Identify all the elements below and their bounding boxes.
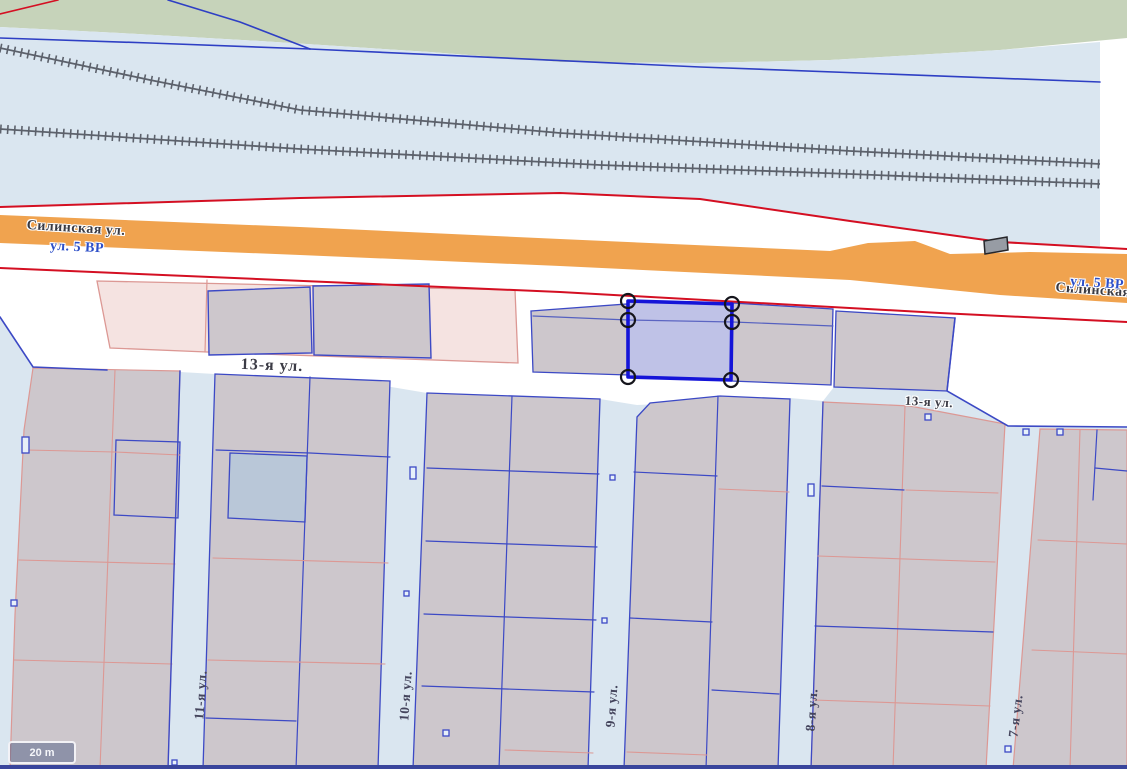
map-canvas[interactable] xyxy=(0,0,1127,769)
node-marker-8[interactable] xyxy=(1005,746,1011,752)
node-marker-6[interactable] xyxy=(410,467,416,479)
parcel-top-row-4[interactable] xyxy=(731,303,833,385)
block-10-9[interactable] xyxy=(413,393,600,769)
block-11-10[interactable] xyxy=(203,374,390,769)
map-root: Силинская ул.ул. 5 ВРСилинскаяул. 5 ВР13… xyxy=(0,0,1127,769)
parcel-bluegray[interactable] xyxy=(228,453,307,522)
node-marker-10[interactable] xyxy=(1023,429,1029,435)
bottom-boundary-band xyxy=(0,765,1127,769)
parcel-top-row-1[interactable] xyxy=(208,287,312,355)
node-marker-7[interactable] xyxy=(443,730,449,736)
node-marker-0[interactable] xyxy=(22,437,29,453)
node-marker-4[interactable] xyxy=(602,618,607,623)
node-marker-11[interactable] xyxy=(1057,429,1063,435)
node-marker-12[interactable] xyxy=(808,484,814,496)
parcel-block-a-blue[interactable] xyxy=(114,440,180,518)
node-marker-9[interactable] xyxy=(172,760,177,765)
scale-bar: 20 m xyxy=(8,741,76,764)
parcel-top-row-2[interactable] xyxy=(313,284,431,358)
block-8-7[interactable] xyxy=(811,402,1005,769)
parcel-top-row-3[interactable] xyxy=(531,304,628,375)
selected-parcel[interactable] xyxy=(628,301,732,380)
node-marker-1[interactable] xyxy=(11,600,17,606)
node-marker-5[interactable] xyxy=(404,591,409,596)
node-marker-2[interactable] xyxy=(925,414,931,420)
block-9-8[interactable] xyxy=(624,396,790,769)
block-11th-left[interactable] xyxy=(10,368,180,769)
node-marker-3[interactable] xyxy=(610,475,615,480)
scale-bar-text: 20 m xyxy=(29,747,54,759)
parcel-top-row-5[interactable] xyxy=(834,311,955,391)
